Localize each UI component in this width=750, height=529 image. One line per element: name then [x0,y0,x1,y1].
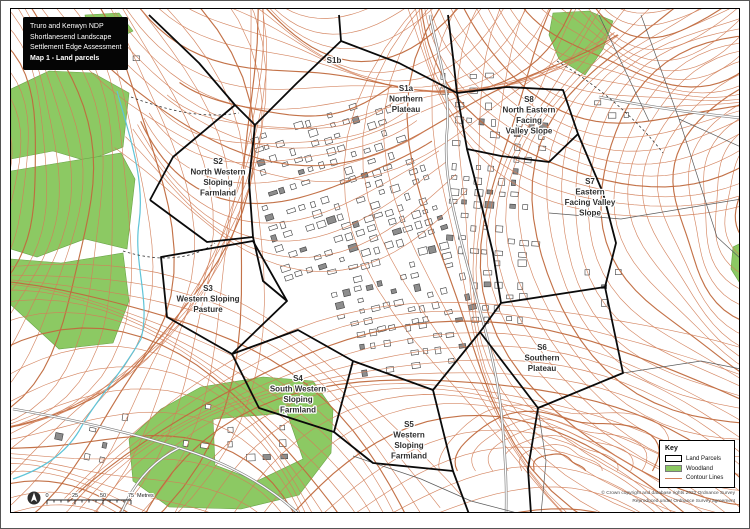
building [364,148,371,153]
building [55,432,64,440]
building [262,205,268,211]
building [311,140,319,147]
building [396,239,404,247]
building [409,262,415,268]
building [354,286,361,292]
building [290,183,297,189]
key-label: Land Parcels [686,456,721,462]
building [520,240,529,246]
contour-line [213,9,498,49]
building [290,148,296,156]
scale-tick-label: 25 [72,493,78,499]
contour-line [534,454,586,471]
building [374,143,383,151]
woodland-swatch-icon [665,465,682,472]
building [427,292,433,298]
building [392,228,402,236]
building [308,167,313,172]
parcel-boundary [453,471,469,512]
building [419,305,425,312]
building [507,317,512,321]
building [343,289,351,297]
building [371,259,380,267]
building [289,250,298,257]
building [608,113,616,118]
building [414,284,421,292]
contour-line [614,41,739,381]
map-frame: S1bS1aNorthernPlateauS8North EasternFaci… [10,8,740,513]
map-key: Key Land Parcels Woodland Contour Lines [659,440,735,488]
map-name: Map 1 - Land parcels [30,54,121,65]
building [461,213,468,218]
building [305,155,313,162]
building [339,257,344,262]
building [228,427,233,432]
field-boundary [599,15,649,121]
building [408,307,415,312]
building [314,254,321,260]
key-item-land-parcels: Land Parcels [665,455,729,462]
building [284,274,293,281]
building [300,247,307,253]
parcel-boundary [150,200,253,242]
building [362,370,368,377]
building [351,151,356,157]
scale-unit-label: Metres [137,493,154,499]
building [374,212,383,218]
building [439,242,449,251]
building [496,226,503,233]
building [298,204,305,210]
building [310,201,316,208]
building [276,140,285,148]
building [378,119,386,125]
contour-line [143,9,556,91]
building [377,281,383,287]
building [364,215,374,223]
building [334,133,340,138]
key-title: Key [665,445,729,452]
building [327,147,337,156]
building [470,74,476,78]
building [412,318,419,324]
building [404,193,410,200]
building [510,204,516,208]
building [511,192,519,197]
building [360,344,365,349]
building [412,362,421,369]
building [498,178,504,185]
building [495,251,503,256]
building [360,309,365,314]
building [446,332,454,337]
building [440,224,447,230]
building [467,118,472,123]
building [484,271,492,275]
key-label: Contour Lines [686,475,723,481]
building [379,189,385,194]
scale-tick-label: 0 [45,493,48,499]
building [368,158,376,164]
contour-line [155,9,539,87]
map-title-box: Truro and Kenwyn NDP Shortlanesend Lands… [23,17,128,70]
building [385,209,393,217]
contour-line [133,9,574,92]
building [518,260,526,266]
building [485,201,494,208]
contour-line [432,9,739,512]
building [361,248,371,256]
building [464,294,470,301]
building [295,270,303,277]
building [352,221,359,228]
contour-line [642,56,739,358]
contour-line [180,83,392,117]
building [345,233,353,241]
field-boundary [538,408,546,512]
parcel-label-s1b: S1b [327,56,342,65]
copyright-line: © Crown copyright and database rights 20… [601,490,735,497]
building [356,229,365,236]
building [327,269,336,275]
building [306,224,315,232]
building [486,103,492,110]
building [411,210,421,219]
building [280,425,285,430]
road [599,97,739,118]
building [318,263,327,270]
building [491,119,496,126]
building [337,214,344,221]
building [331,292,337,298]
woodland-polygon [11,153,135,257]
building [374,247,380,254]
title-line: Truro and Kenwyn NDP [30,22,121,33]
building [283,230,292,237]
building [287,208,296,214]
building [305,120,311,127]
building [317,220,327,229]
parcel-label-s1a: S1aNorthernPlateau [389,84,423,114]
contour-line [735,135,739,263]
parcel-label-s3: S3Western SlopingPasture [177,284,240,314]
contour-line [455,411,659,471]
building [442,252,452,260]
building [278,187,285,194]
building [246,454,255,461]
building [432,206,437,211]
title-line: Shortlanesend Landscape [30,33,121,44]
building [327,113,332,119]
map-canvas: S1bS1aNorthernPlateauS8North EasternFaci… [11,9,739,512]
key-item-contour-lines: Contour Lines [665,475,729,481]
contour-line [149,113,417,163]
building [370,201,380,209]
building [370,343,375,349]
scale-tick-label: 75 [128,493,134,499]
building [275,245,284,253]
building [308,128,318,137]
parcel-boundary [448,15,457,93]
building [269,224,278,230]
building [464,176,469,180]
key-label: Woodland [686,466,713,472]
contour-line [689,86,740,312]
building [358,298,364,303]
building [481,250,486,254]
parcel-label-s8: S8North EasternFacingValley Slope [503,95,556,136]
building [344,166,353,175]
copyright-notice: © Crown copyright and database rights 20… [601,490,735,505]
key-item-woodland: Woodland [665,465,729,472]
building [326,215,336,224]
building [474,202,481,209]
building [470,249,479,254]
building [391,289,397,294]
building [484,282,490,287]
building [417,231,426,239]
building [321,196,330,204]
parcel-label-s5: S5WesternSlopingFarmland [391,420,427,461]
parcel-label-s6: S6SouthernPlateau [524,343,559,373]
field-boundaries-layer [123,15,739,512]
building [312,209,322,218]
building [446,235,453,241]
building [366,284,373,290]
building [306,267,313,273]
building [335,301,344,309]
building [324,137,332,145]
building [268,190,278,196]
land-parcels-swatch-icon [665,455,682,462]
building [508,239,514,244]
building [334,204,340,211]
building [102,442,107,448]
building [461,189,467,195]
building [428,245,436,253]
building [388,152,394,160]
woodland-polygon [731,243,739,285]
building [411,272,419,278]
building [420,165,426,172]
title-line: Settlement Edge Assessment [30,43,121,54]
building [523,204,528,209]
contour-line-swatch-icon [665,478,682,479]
building [440,287,447,294]
contour-line [234,509,723,512]
map-page: S1bS1aNorthernPlateauS8North EasternFaci… [0,0,750,529]
building-cluster [261,153,449,284]
building [89,427,96,432]
building [388,218,396,225]
building [298,169,304,175]
building [353,276,362,283]
building [448,358,454,363]
building [415,221,423,229]
building [367,225,376,232]
building [334,235,343,243]
scale-tick-label: 50 [100,493,106,499]
building [435,347,441,354]
footpath-dashed [131,97,239,115]
building [452,163,456,170]
building [265,214,274,222]
building [418,247,428,256]
copyright-line: Reproduced under Ordnance Survey agreeme… [601,498,735,505]
